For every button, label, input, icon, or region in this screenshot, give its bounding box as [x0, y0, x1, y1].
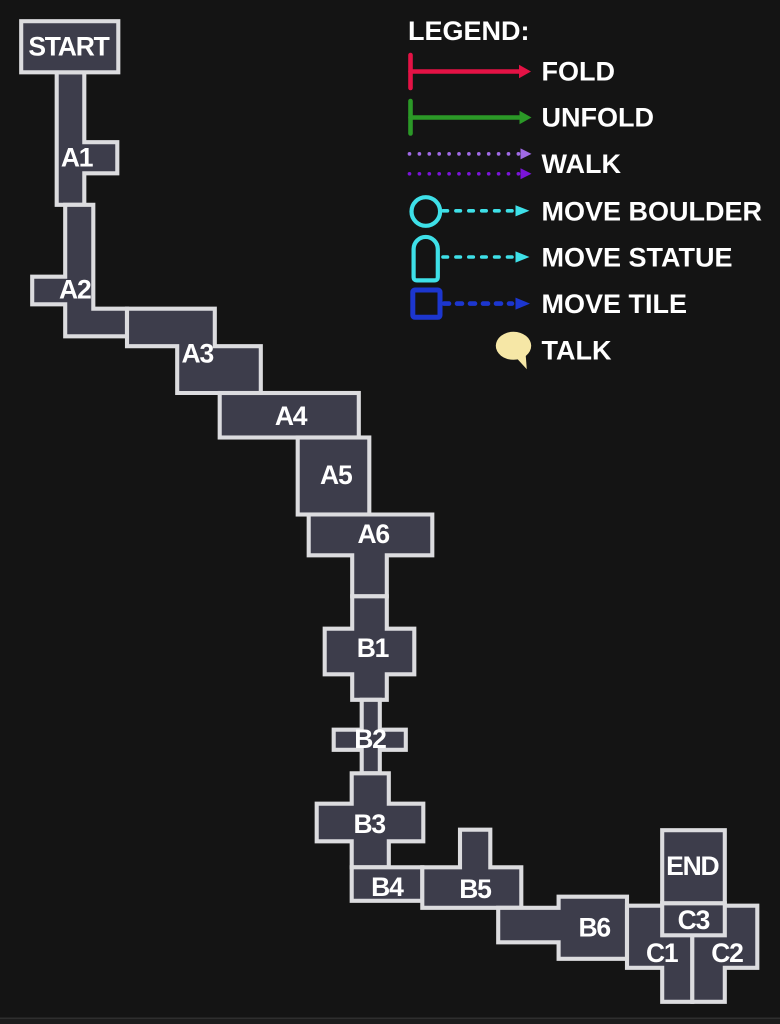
svg-text:MOVE TILE: MOVE TILE: [542, 289, 688, 319]
svg-text:UNFOLD: UNFOLD: [542, 103, 654, 133]
svg-text:TALK: TALK: [542, 336, 612, 366]
svg-text:B5: B5: [459, 874, 491, 904]
svg-text:WALK: WALK: [542, 149, 622, 179]
svg-text:MOVE STATUE: MOVE STATUE: [542, 243, 733, 273]
svg-text:FOLD: FOLD: [542, 57, 616, 87]
svg-text:B3: B3: [353, 809, 385, 839]
svg-text:END: END: [666, 851, 719, 881]
svg-text:MOVE BOULDER: MOVE BOULDER: [542, 197, 763, 227]
svg-text:C1: C1: [646, 938, 678, 968]
svg-text:C2: C2: [711, 938, 743, 968]
svg-text:B1: B1: [357, 633, 389, 663]
svg-text:A3: A3: [182, 339, 214, 369]
svg-text:LEGEND:: LEGEND:: [408, 16, 530, 46]
svg-text:A6: A6: [357, 519, 389, 549]
svg-text:A2: A2: [59, 275, 91, 305]
svg-text:A5: A5: [320, 460, 352, 490]
svg-text:C3: C3: [678, 905, 710, 935]
svg-text:START: START: [28, 31, 109, 61]
svg-text:B4: B4: [371, 872, 404, 902]
svg-text:A1: A1: [61, 143, 93, 173]
svg-text:B6: B6: [578, 913, 610, 943]
svg-text:B2: B2: [354, 724, 386, 754]
svg-text:A4: A4: [275, 401, 308, 431]
